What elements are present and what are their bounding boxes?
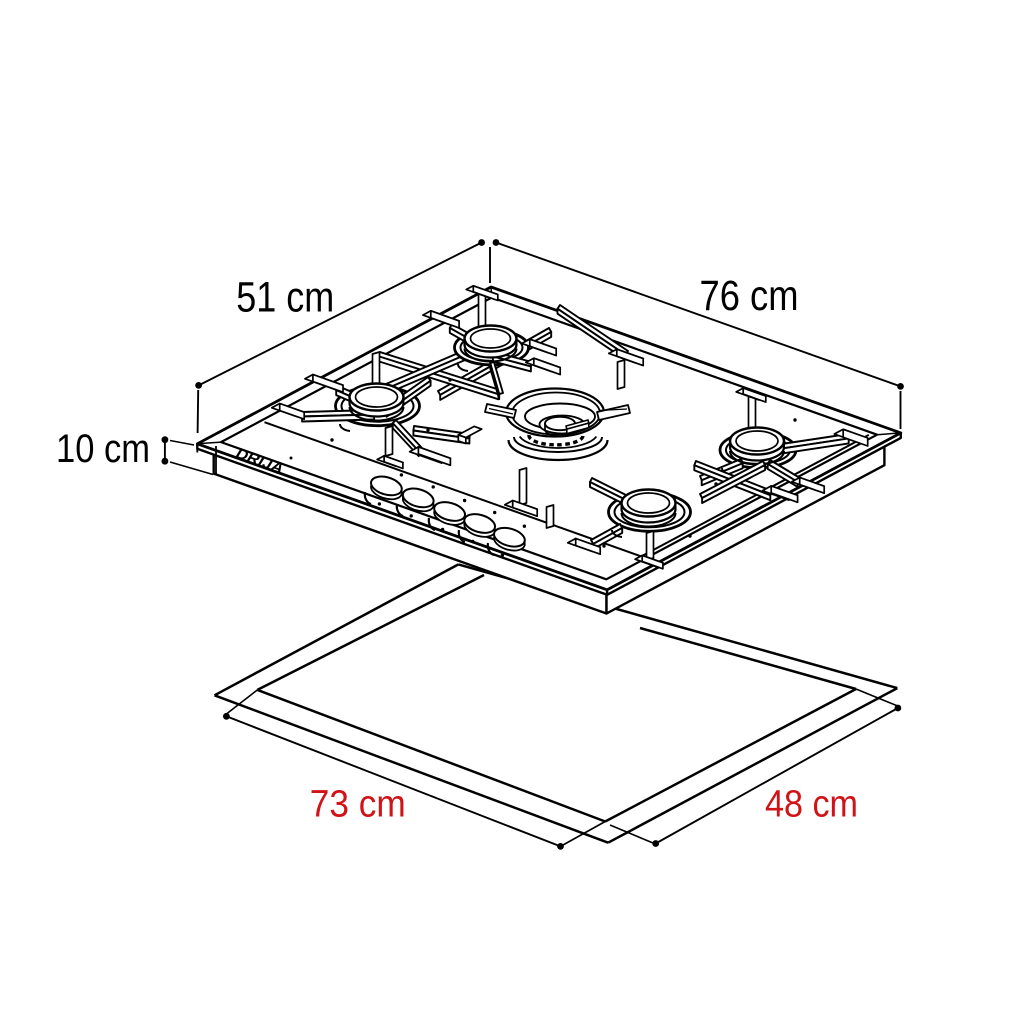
- svg-text:48 cm: 48 cm: [765, 784, 858, 826]
- svg-text:10 cm: 10 cm: [56, 427, 150, 471]
- svg-text:76 cm: 76 cm: [700, 272, 799, 320]
- svg-text:51 cm: 51 cm: [236, 274, 334, 322]
- svg-text:73 cm: 73 cm: [310, 784, 406, 826]
